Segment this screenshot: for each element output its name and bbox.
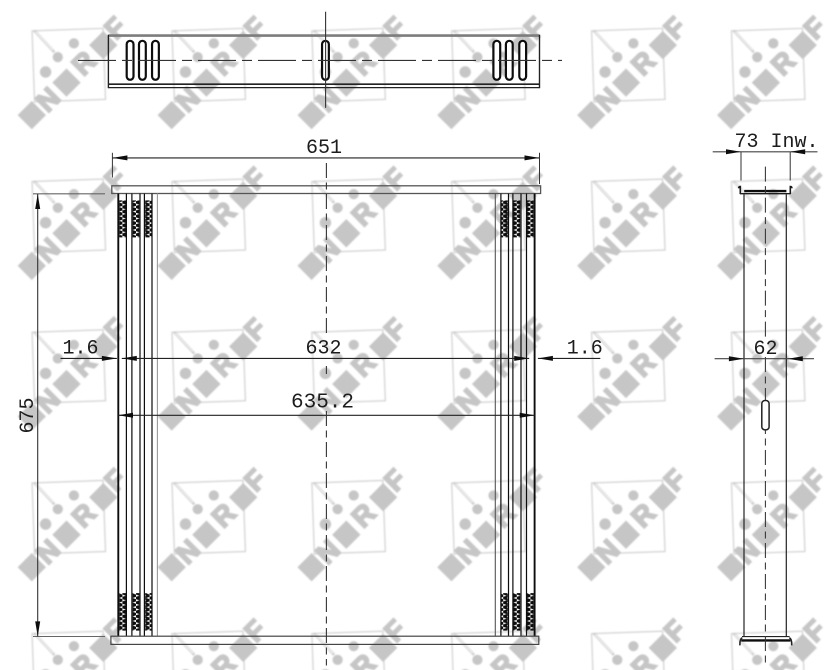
svg-text:62: 62 — [753, 338, 777, 361]
svg-text:651: 651 — [306, 137, 342, 160]
svg-text:675: 675 — [17, 397, 40, 433]
svg-text:1.6: 1.6 — [62, 338, 98, 361]
svg-text:73 Inw.: 73 Inw. — [734, 131, 818, 154]
svg-text:632: 632 — [305, 338, 341, 361]
svg-text:1.6: 1.6 — [567, 338, 603, 361]
svg-text:635.2: 635.2 — [291, 392, 354, 415]
